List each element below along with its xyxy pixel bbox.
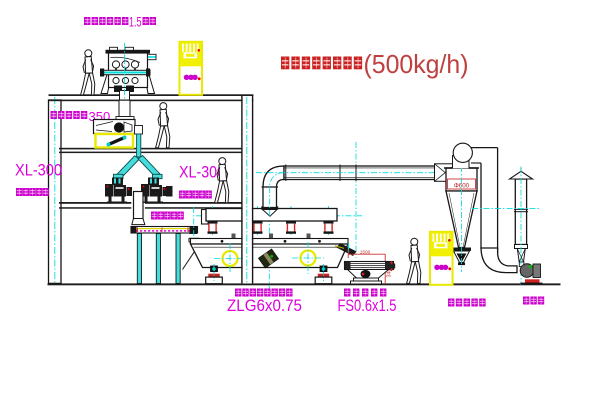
svg-text:1500: 1500 bbox=[360, 249, 371, 255]
svg-text:ZLG6x0.75: ZLG6x0.75 bbox=[227, 297, 302, 315]
svg-text:XL-300: XL-300 bbox=[15, 161, 62, 180]
svg-text:(500kg/h): (500kg/h) bbox=[364, 49, 469, 79]
svg-text:FS0.6x1.5: FS0.6x1.5 bbox=[338, 297, 397, 315]
svg-text:1.5: 1.5 bbox=[129, 14, 142, 30]
